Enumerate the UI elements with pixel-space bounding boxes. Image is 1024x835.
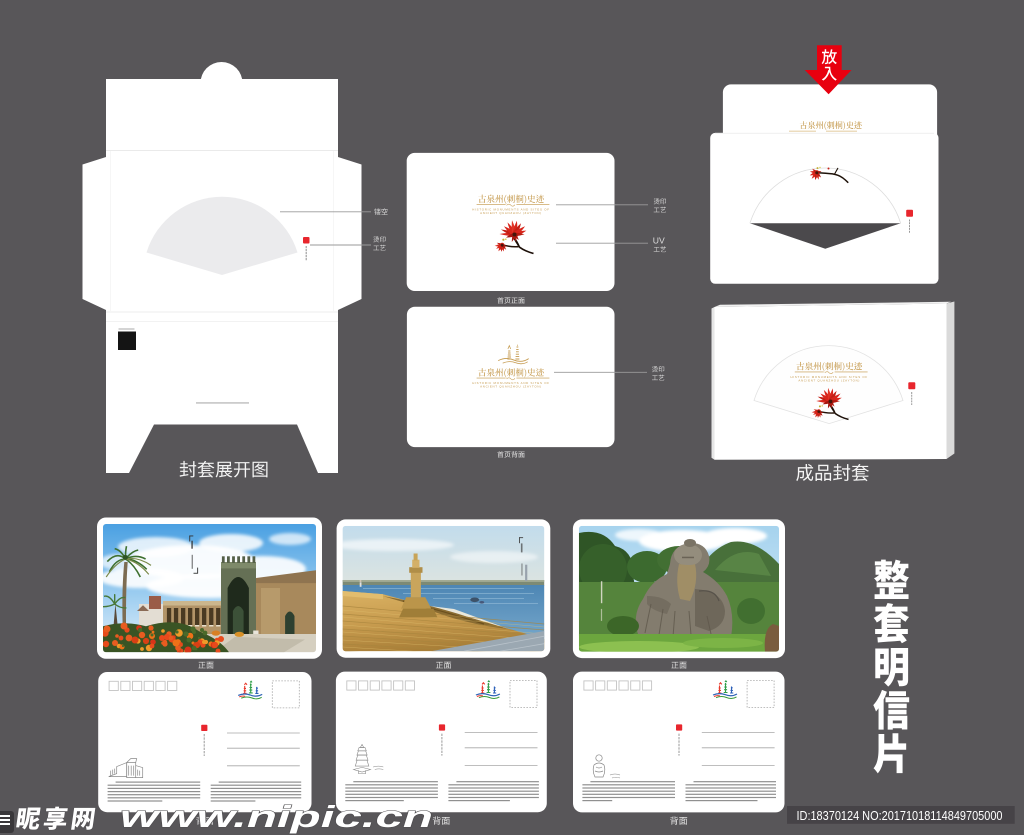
svg-text:ID:18370124 NO:201710181148497: ID:18370124 NO:20171018114849705000 bbox=[797, 808, 1003, 823]
svg-text:ANCIENT QUANZHOU (ZAYTON): ANCIENT QUANZHOU (ZAYTON) bbox=[480, 211, 542, 215]
svg-text:UV: UV bbox=[653, 235, 665, 245]
svg-text:ANCIENT QUANZHOU (ZAYTON): ANCIENT QUANZHOU (ZAYTON) bbox=[480, 385, 542, 389]
svg-text:www.nipic.cn: www.nipic.cn bbox=[120, 799, 433, 834]
svg-text:ANCIENT QUANZHOU (ZAYTON): ANCIENT QUANZHOU (ZAYTON) bbox=[798, 379, 860, 383]
